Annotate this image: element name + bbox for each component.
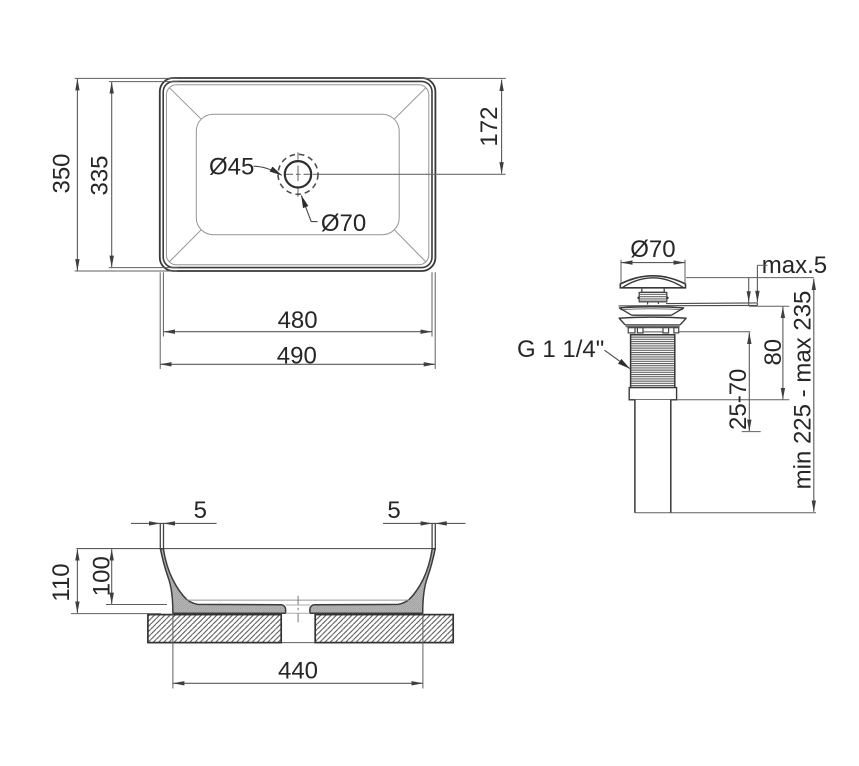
svg-text:350: 350 — [48, 153, 75, 193]
svg-text:G 1 1/4": G 1 1/4" — [517, 336, 604, 363]
svg-text:max.5: max.5 — [762, 252, 827, 279]
svg-text:Ø70: Ø70 — [630, 236, 675, 263]
svg-text:335: 335 — [86, 155, 113, 195]
svg-text:5: 5 — [387, 497, 400, 524]
svg-text:110: 110 — [48, 563, 75, 601]
svg-text:25-70: 25-70 — [725, 369, 752, 430]
svg-text:490: 490 — [277, 342, 317, 369]
svg-text:440: 440 — [278, 657, 318, 684]
svg-text:480: 480 — [278, 307, 318, 334]
svg-text:100: 100 — [89, 556, 116, 596]
svg-text:80: 80 — [760, 339, 787, 366]
svg-text:172: 172 — [476, 107, 503, 147]
svg-text:min 225 - max 235: min 225 - max 235 — [790, 291, 817, 490]
svg-text:Ø70: Ø70 — [321, 210, 366, 237]
svg-text:Ø45: Ø45 — [209, 154, 254, 181]
svg-text:5: 5 — [194, 497, 207, 524]
